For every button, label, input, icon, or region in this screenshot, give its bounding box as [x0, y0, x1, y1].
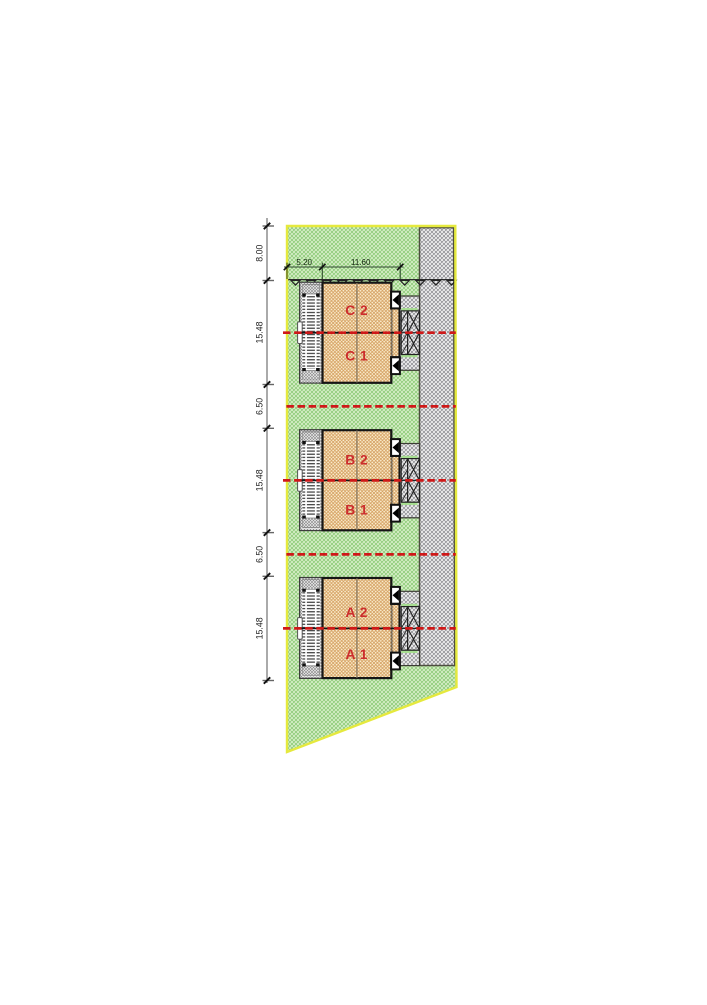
svg-text:C 1: C 1: [345, 349, 368, 364]
svg-text:8.00: 8.00: [255, 245, 265, 262]
svg-text:A 1: A 1: [345, 647, 367, 662]
svg-text:B 2: B 2: [345, 453, 368, 468]
svg-text:6.50: 6.50: [255, 398, 265, 415]
svg-text:B 1: B 1: [345, 502, 368, 517]
svg-text:15.48: 15.48: [255, 469, 265, 491]
svg-text:C 2: C 2: [345, 303, 368, 318]
svg-text:15.48: 15.48: [255, 617, 265, 639]
svg-text:15.48: 15.48: [255, 321, 265, 343]
svg-text:A 2: A 2: [345, 605, 367, 620]
svg-text:11.60: 11.60: [351, 258, 371, 267]
svg-text:6.50: 6.50: [255, 546, 265, 563]
svg-text:5.20: 5.20: [296, 258, 312, 267]
